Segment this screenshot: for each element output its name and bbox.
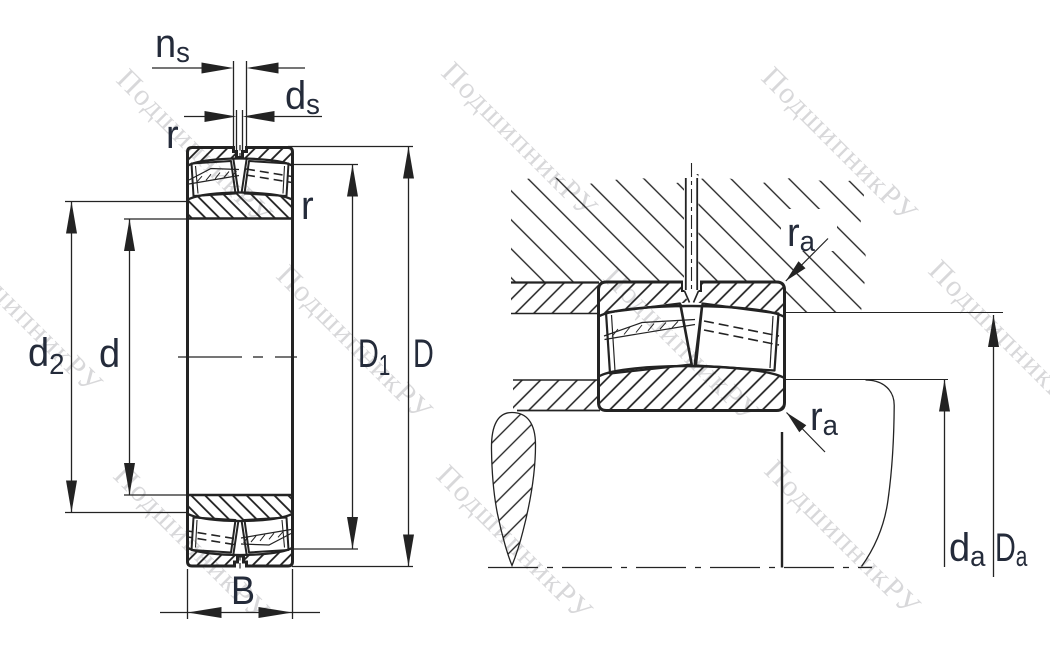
svg-text:B: B [231,569,255,613]
svg-text:d: d [99,332,120,376]
svg-text:r: r [166,113,179,157]
svg-text:D: D [413,331,434,376]
svg-text:r: r [301,184,314,228]
